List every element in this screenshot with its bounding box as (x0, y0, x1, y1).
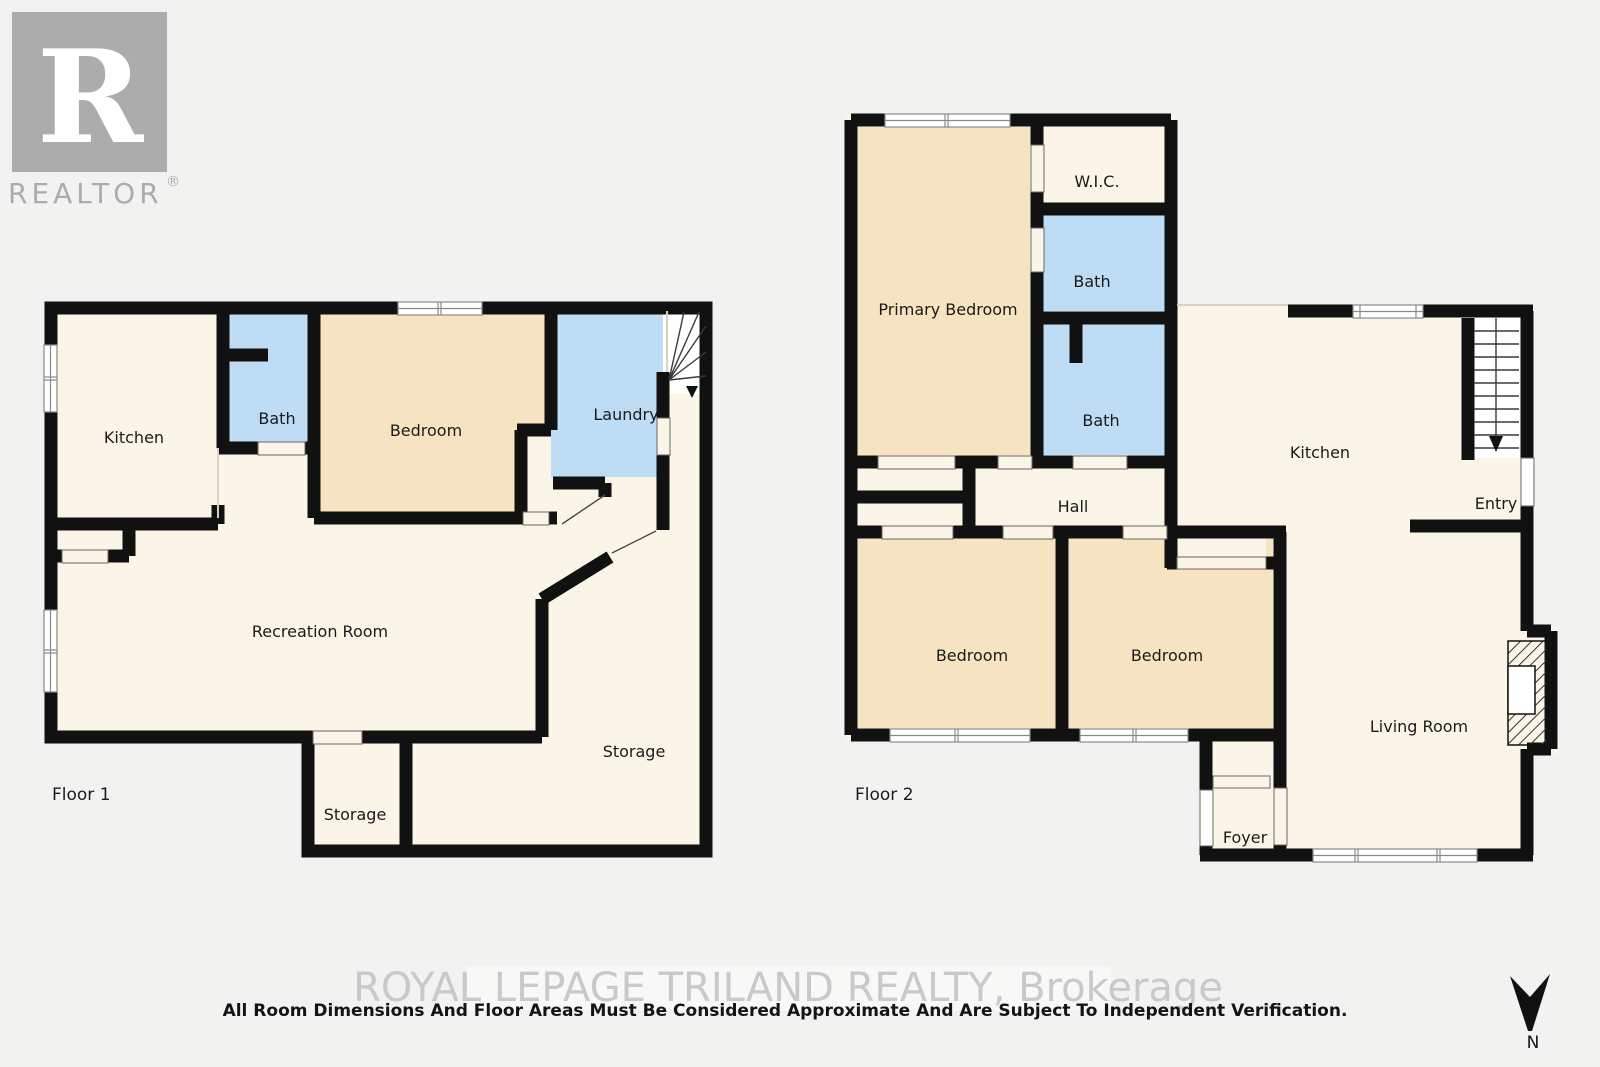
primary-door-opening (998, 456, 1032, 469)
room-label-storage-small: Storage (324, 805, 387, 824)
floor1-storage-door-opening (313, 731, 362, 744)
room-label-bath-upper: Bath (1073, 272, 1110, 291)
room-label-entry: Entry (1475, 494, 1518, 513)
entry-front-door-opening (1521, 458, 1534, 506)
room-label-bedroom-right: Bedroom (1131, 646, 1203, 665)
realtor-logo-letter: R (37, 23, 145, 173)
floor2-title: Floor 2 (855, 785, 914, 805)
room-label-wic: W.I.C. (1074, 172, 1119, 191)
foyer-inner-opening (1213, 776, 1270, 788)
room-label-bath: Bath (258, 409, 295, 428)
floorplan-page: R REALTOR ® (0, 0, 1600, 1067)
room-label-bath-lower: Bath (1082, 411, 1119, 430)
bedroom-left-door-opening (1003, 526, 1053, 539)
room-label-primary-bedroom: Primary Bedroom (878, 300, 1017, 319)
room-label-kitchen2: Kitchen (1290, 443, 1350, 462)
room-label-bedroom-left: Bedroom (936, 646, 1008, 665)
room-label-recreation: Recreation Room (252, 622, 388, 641)
bedroom-right-door-opening (1123, 526, 1167, 539)
room-label-living-room: Living Room (1370, 717, 1468, 736)
room-label-bedroom: Bedroom (390, 421, 462, 440)
room-label-laundry: Laundry (593, 405, 658, 424)
foyer-living-opening (1274, 788, 1287, 845)
wic-door-opening (1031, 145, 1044, 192)
north-label: N (1527, 1033, 1540, 1053)
room-label-storage-large: Storage (603, 742, 666, 761)
bedroom-closet-slider-opening (1177, 557, 1266, 569)
realtor-logo-icon: R REALTOR ® (8, 12, 180, 210)
floorplan-canvas: R REALTOR ® (0, 0, 1600, 1067)
floor1-bath-door-opening (258, 442, 305, 455)
floor1-laundry-room (551, 308, 663, 477)
room-label-hall: Hall (1058, 497, 1089, 516)
floor1-closet-door-opening (523, 512, 549, 525)
floor2-primary-bedroom-room (858, 127, 1030, 455)
realtor-logo-word: REALTOR (8, 177, 163, 210)
floor2-bath-upper-room (1043, 215, 1165, 311)
bath-upper-door-opening (1031, 228, 1044, 272)
floor1-title: Floor 1 (52, 785, 111, 805)
room-label-kitchen: Kitchen (104, 428, 164, 447)
hall-closet-slider-opening (882, 526, 953, 539)
floor2-bath-lower-room (1043, 324, 1165, 455)
registered-mark: ® (166, 174, 180, 190)
primary-closet-slider-opening (878, 456, 955, 469)
foyer-exterior-door-opening (1200, 790, 1213, 846)
fireplace-icon (1508, 641, 1547, 745)
room-label-foyer: Foyer (1223, 828, 1268, 847)
floor2-bedroom-left-room (858, 538, 1055, 728)
disclaimer-text: All Room Dimensions And Floor Areas Must… (223, 1001, 1348, 1021)
floor1-laundry-side-opening (657, 418, 670, 455)
bath-lower-door-opening (1073, 456, 1127, 469)
floor1-kitchen-closet-opening (62, 550, 108, 563)
